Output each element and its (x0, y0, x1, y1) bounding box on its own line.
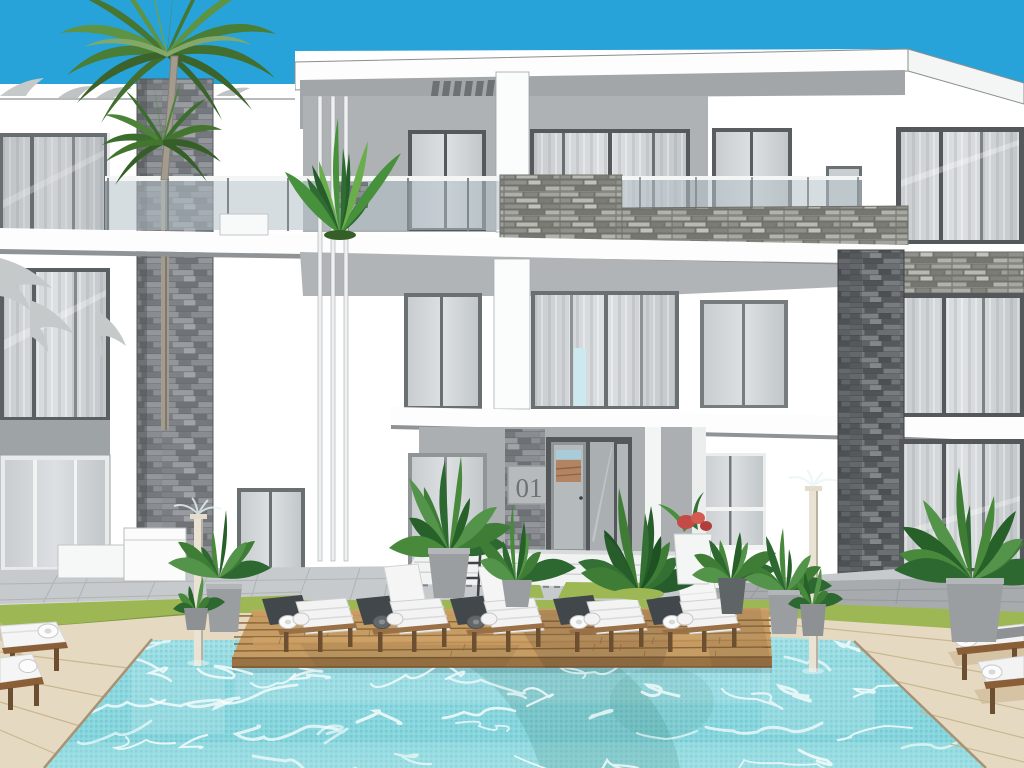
svg-text:01: 01 (516, 473, 543, 503)
